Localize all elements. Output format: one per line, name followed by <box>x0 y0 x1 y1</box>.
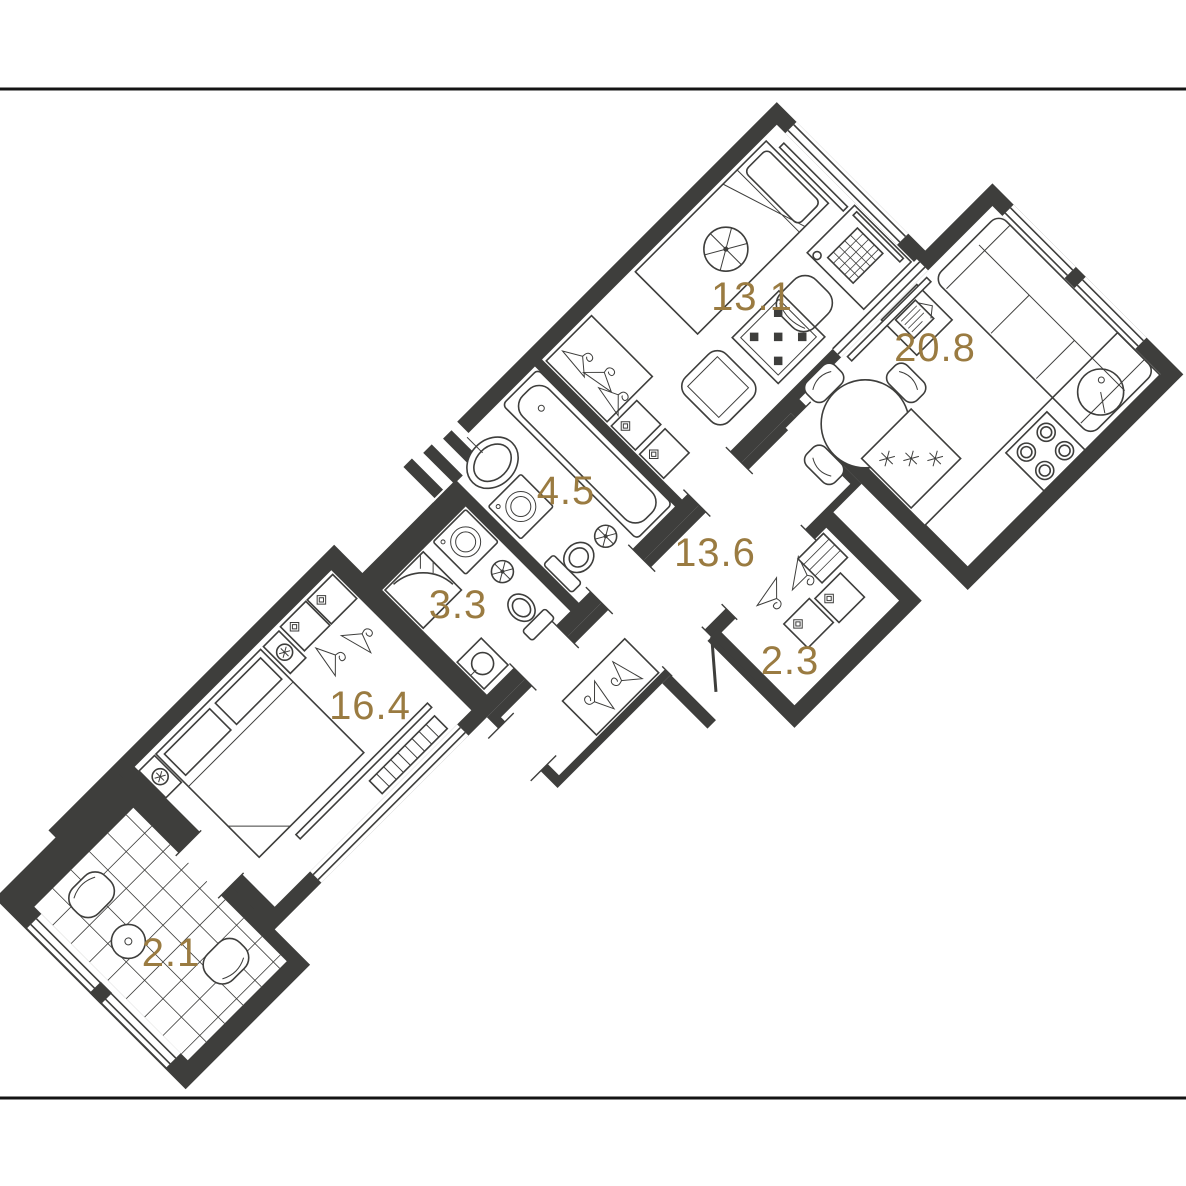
area-label-balcony: 2.1 <box>142 931 201 975</box>
area-label-bedroom-1: 13.1 <box>711 275 793 319</box>
rotated-plan-group <box>0 28 1183 1186</box>
floor-plan-canvas: 13.1 20.8 4.5 3.3 13.6 2.3 16.4 2.1 <box>0 0 1186 1186</box>
area-label-shower-room: 3.3 <box>429 583 488 627</box>
area-label-bedroom-2: 16.4 <box>329 684 411 728</box>
area-label-bathroom: 4.5 <box>537 469 596 513</box>
floor-plan-page: 13.1 20.8 4.5 3.3 13.6 2.3 16.4 2.1 <box>0 0 1186 1186</box>
area-label-closet: 2.3 <box>761 639 820 683</box>
area-label-living-kitchen: 20.8 <box>894 326 976 370</box>
area-label-hallway: 13.6 <box>674 531 756 575</box>
